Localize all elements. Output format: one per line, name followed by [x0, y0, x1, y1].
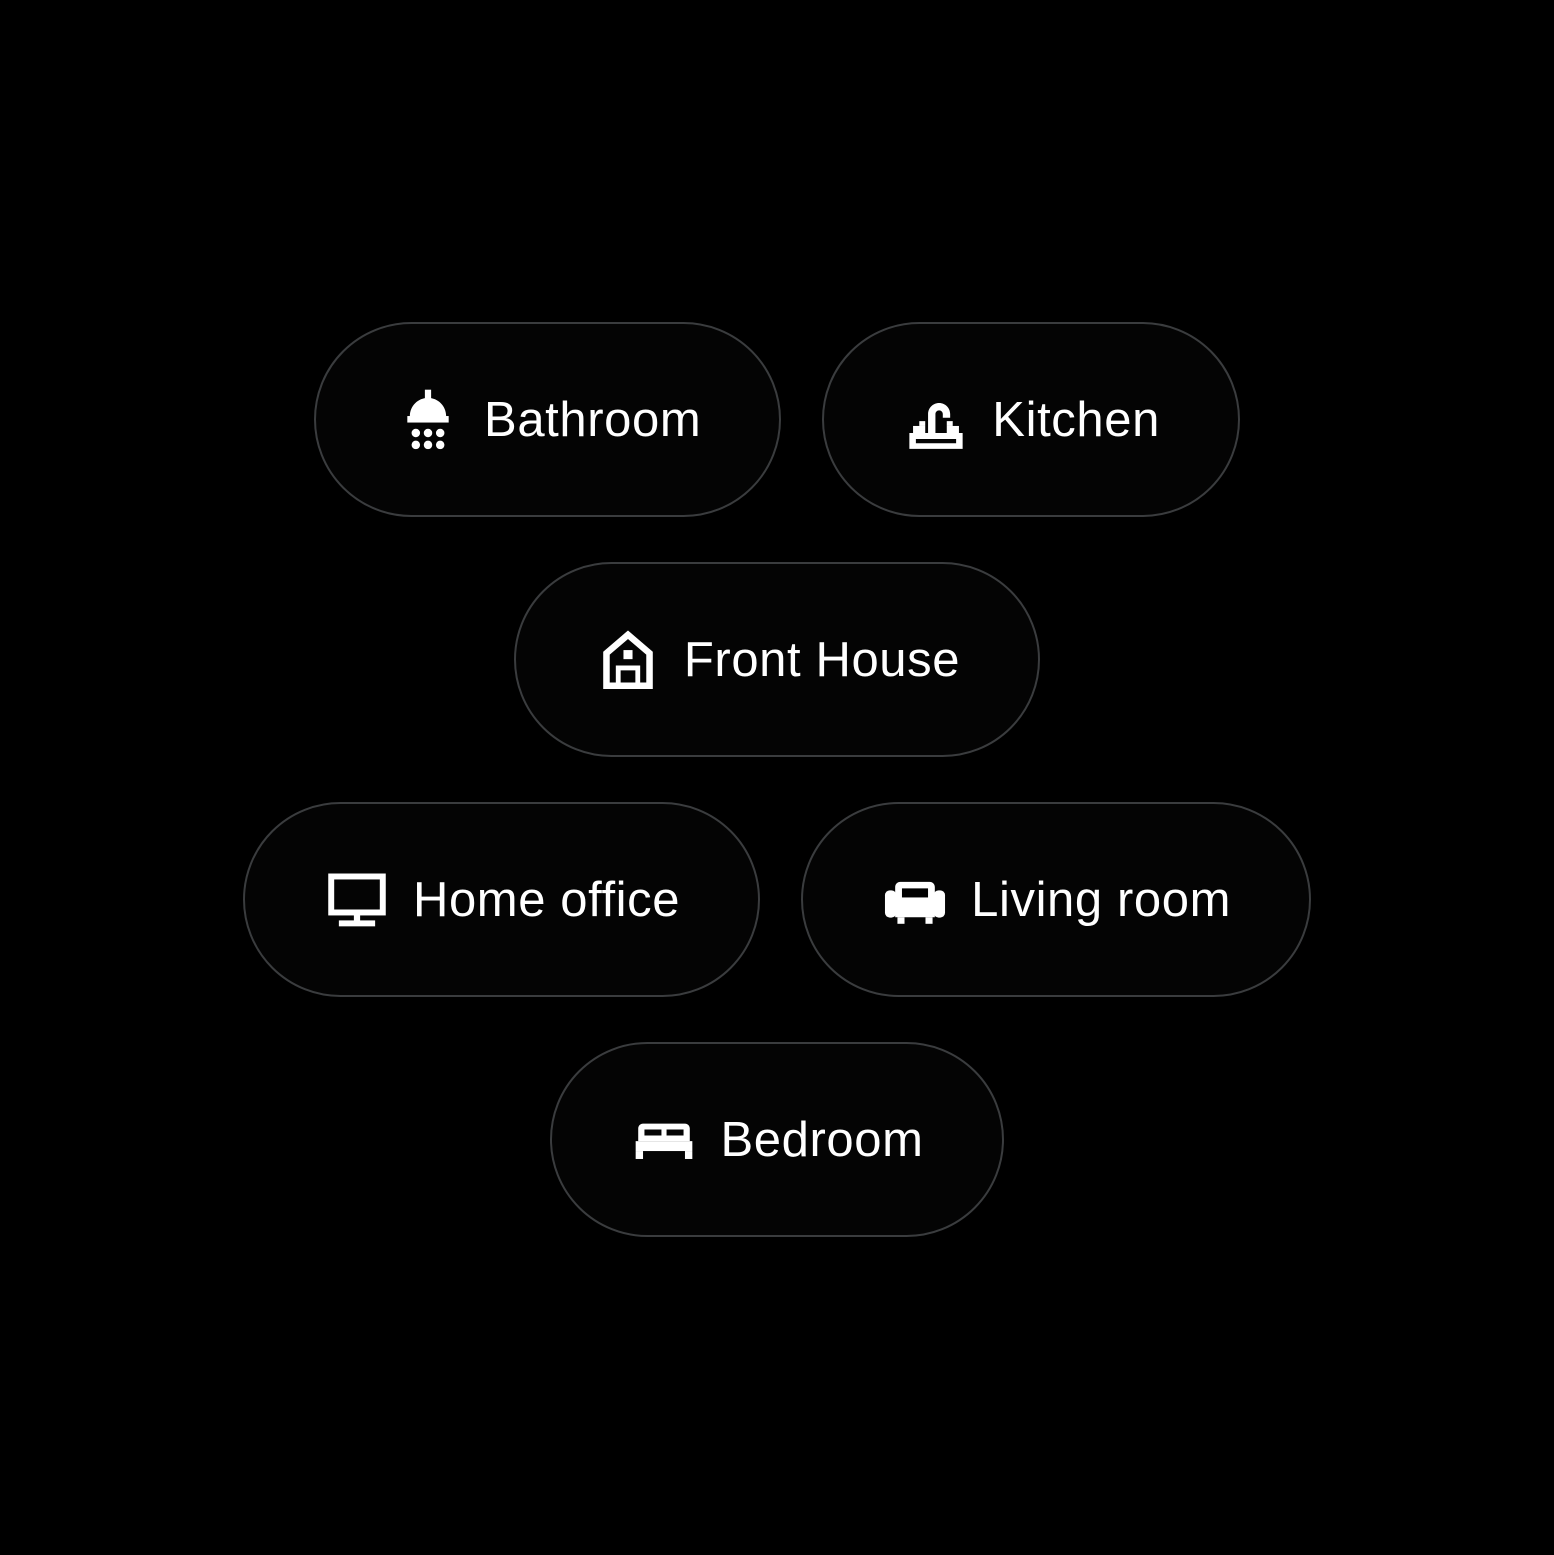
room-chip-label: Bedroom: [720, 1112, 923, 1168]
monitor-icon: [323, 866, 391, 934]
room-chip-bathroom[interactable]: Bathroom: [314, 322, 781, 517]
room-selection-screen: Bathroom Kitchen: [0, 0, 1554, 1555]
room-chip-label: Living room: [971, 872, 1231, 928]
room-chip-home-office[interactable]: Home office: [243, 802, 760, 997]
bed-icon: [630, 1106, 698, 1174]
room-chip-living-room[interactable]: Living room: [801, 802, 1311, 997]
room-chip-label: Kitchen: [992, 392, 1160, 448]
house-icon: [594, 626, 662, 694]
room-chip-label: Home office: [413, 872, 680, 928]
faucet-icon: [902, 386, 970, 454]
chip-row-3: Home office Living room: [243, 802, 1311, 997]
room-chip-label: Front House: [684, 632, 960, 688]
shower-icon: [394, 386, 462, 454]
room-chip-bedroom[interactable]: Bedroom: [550, 1042, 1003, 1237]
sofa-icon: [881, 866, 949, 934]
room-chip-grid: Bathroom Kitchen: [0, 0, 1554, 1237]
room-chip-kitchen[interactable]: Kitchen: [822, 322, 1240, 517]
room-chip-label: Bathroom: [484, 392, 701, 448]
chip-row-2: Front House: [514, 562, 1040, 757]
chip-row-1: Bathroom Kitchen: [314, 322, 1240, 517]
chip-row-4: Bedroom: [550, 1042, 1003, 1237]
room-chip-front-house[interactable]: Front House: [514, 562, 1040, 757]
